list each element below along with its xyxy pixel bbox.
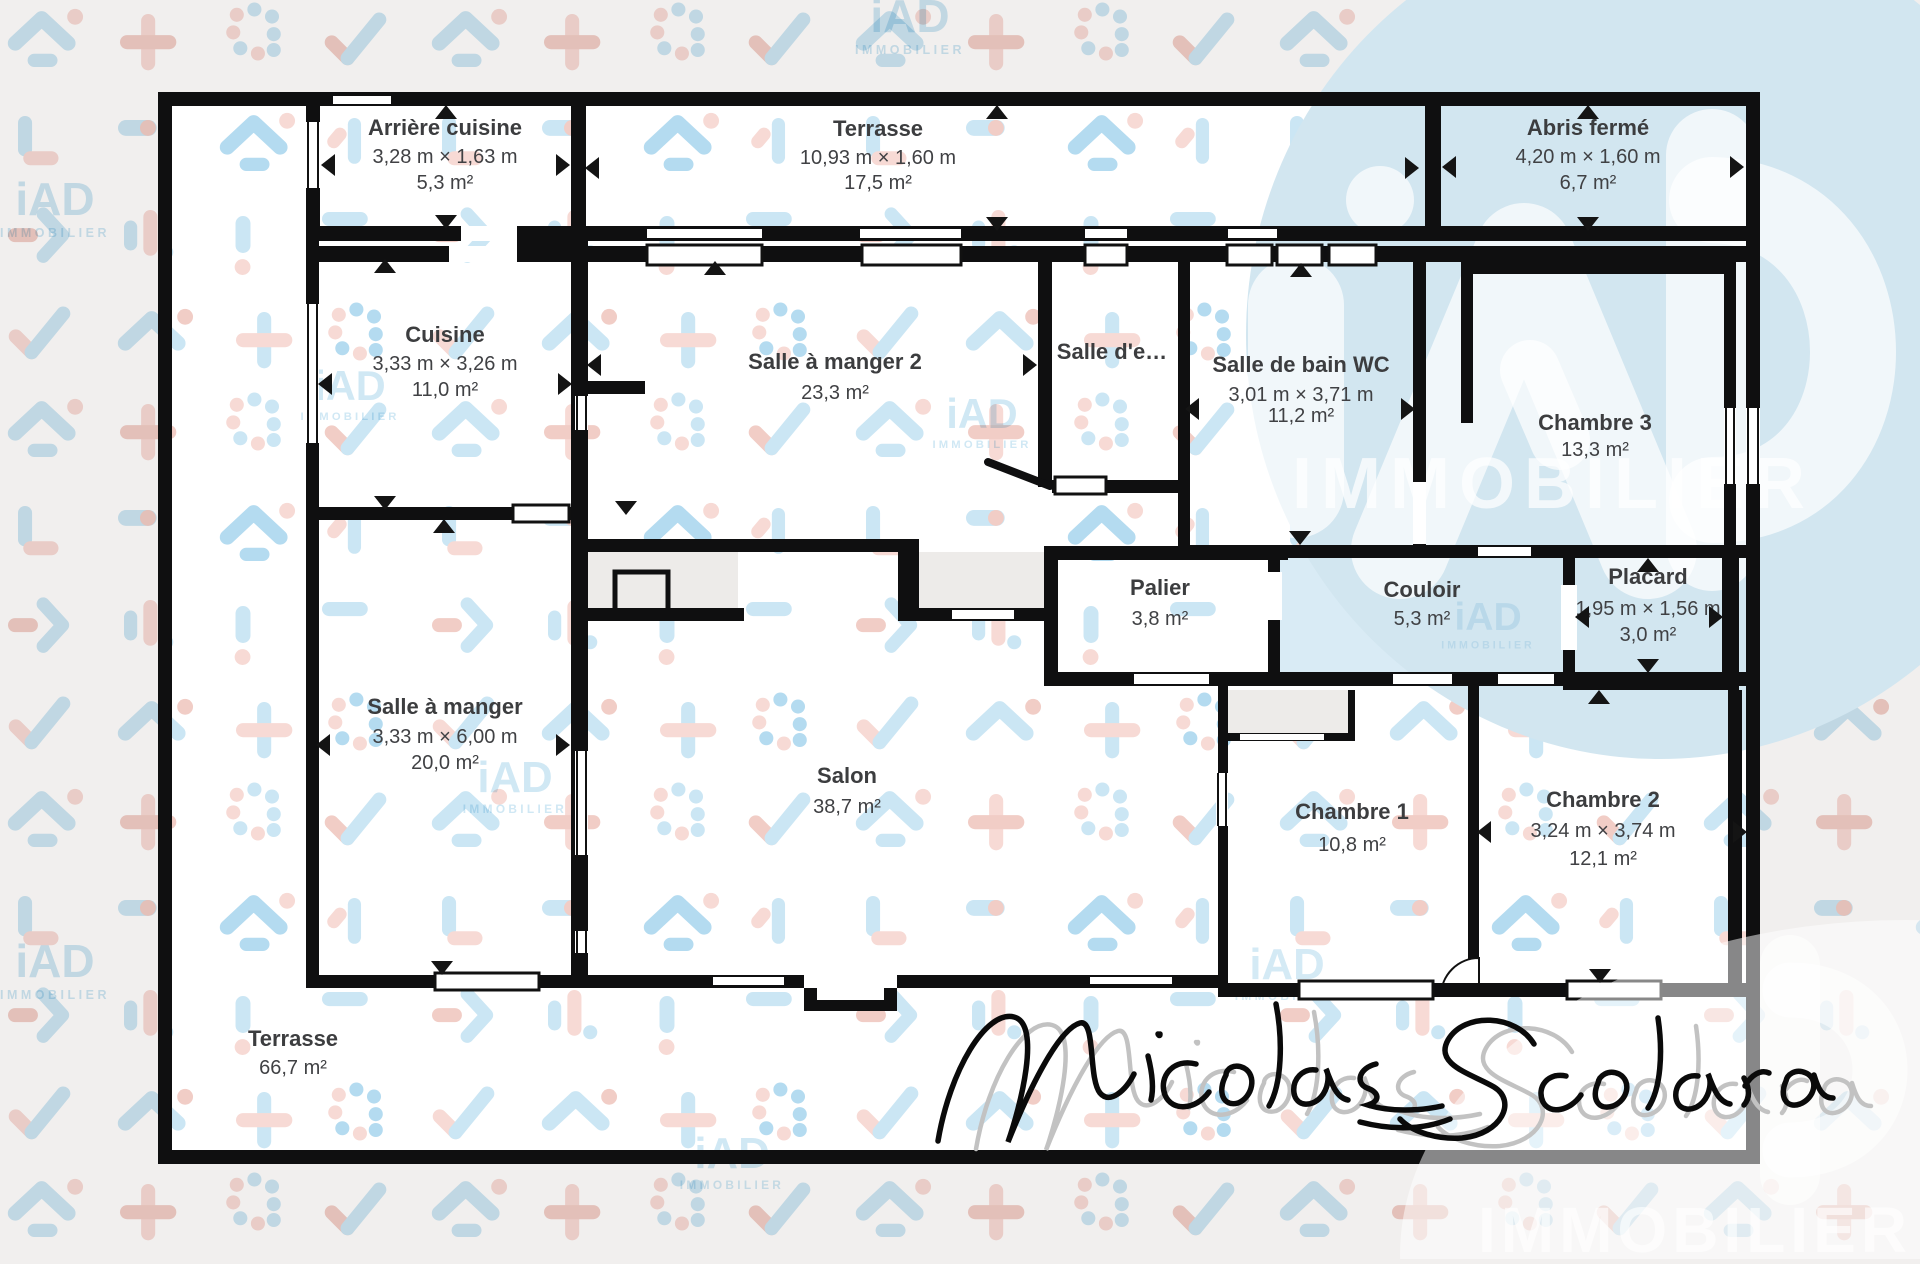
svg-text:Cuisine: Cuisine	[405, 322, 484, 347]
svg-text:IMMOBILIER: IMMOBILIER	[1441, 640, 1534, 652]
svg-text:iAD: iAD	[477, 753, 552, 802]
svg-text:iAD: iAD	[15, 935, 94, 987]
svg-text:Couloir: Couloir	[1384, 577, 1461, 602]
svg-text:IMMOBILIER: IMMOBILIER	[1478, 1194, 1912, 1259]
svg-text:IMMOBILIER: IMMOBILIER	[680, 1178, 784, 1192]
svg-text:1,95 m × 1,56 m: 1,95 m × 1,56 m	[1575, 598, 1720, 620]
svg-text:6,7 m²: 6,7 m²	[1560, 172, 1617, 194]
svg-text:66,7 m²: 66,7 m²	[259, 1057, 327, 1079]
svg-text:Chambre 2: Chambre 2	[1546, 787, 1660, 812]
svg-text:Salle de bain WC: Salle de bain WC	[1212, 352, 1389, 377]
svg-text:3,01 m × 3,71 m: 3,01 m × 3,71 m	[1228, 384, 1373, 406]
svg-text:3,24 m × 3,74 m: 3,24 m × 3,74 m	[1530, 820, 1675, 842]
svg-text:23,3 m²: 23,3 m²	[801, 382, 869, 404]
svg-text:IMMOBILIER: IMMOBILIER	[463, 802, 567, 816]
svg-text:Salle à manger 2: Salle à manger 2	[748, 349, 922, 374]
svg-text:3,33 m × 6,00 m: 3,33 m × 6,00 m	[372, 726, 517, 748]
svg-text:IMMOBILIER: IMMOBILIER	[933, 439, 1032, 451]
svg-text:17,5 m²: 17,5 m²	[844, 172, 912, 194]
svg-text:Salle à manger: Salle à manger	[367, 694, 523, 719]
svg-text:Terrasse: Terrasse	[833, 116, 923, 141]
svg-text:iAD: iAD	[870, 0, 949, 42]
svg-text:4,20 m × 1,60 m: 4,20 m × 1,60 m	[1515, 146, 1660, 168]
svg-text:Chambre 1: Chambre 1	[1295, 799, 1409, 824]
svg-text:3,8 m²: 3,8 m²	[1132, 608, 1189, 630]
svg-text:iAD: iAD	[946, 391, 1017, 437]
svg-text:3,33 m × 3,26 m: 3,33 m × 3,26 m	[372, 353, 517, 375]
svg-text:Palier: Palier	[1130, 575, 1190, 600]
svg-text:iAD: iAD	[1454, 596, 1521, 639]
svg-text:Salle d'e…: Salle d'e…	[1057, 339, 1167, 364]
svg-text:Terrasse: Terrasse	[248, 1026, 338, 1051]
svg-text:20,0 m²: 20,0 m²	[411, 752, 479, 774]
svg-text:IMMOBILIER: IMMOBILIER	[0, 226, 110, 240]
svg-text:3,0 m²: 3,0 m²	[1620, 624, 1677, 646]
svg-text:38,7 m²: 38,7 m²	[813, 796, 881, 818]
svg-text:10,8 m²: 10,8 m²	[1318, 834, 1386, 856]
svg-text:11,0 m²: 11,0 m²	[412, 379, 479, 401]
svg-text:13,3 m²: 13,3 m²	[1561, 439, 1629, 461]
svg-text:IMMOBILIER: IMMOBILIER	[0, 988, 110, 1002]
svg-text:Salon: Salon	[817, 763, 877, 788]
svg-text:Chambre 3: Chambre 3	[1538, 410, 1652, 435]
svg-text:IMMOBILIER: IMMOBILIER	[855, 43, 965, 57]
svg-text:10,93 m × 1,60 m: 10,93 m × 1,60 m	[800, 147, 956, 169]
svg-text:5,3 m²: 5,3 m²	[1394, 608, 1451, 630]
svg-text:iAD: iAD	[15, 173, 94, 225]
svg-text:5,3 m²: 5,3 m²	[417, 172, 474, 194]
svg-text:3,28 m × 1,63 m: 3,28 m × 1,63 m	[372, 146, 517, 168]
svg-text:11,2 m²: 11,2 m²	[1268, 405, 1335, 427]
svg-text:12,1 m²: 12,1 m²	[1569, 848, 1637, 870]
